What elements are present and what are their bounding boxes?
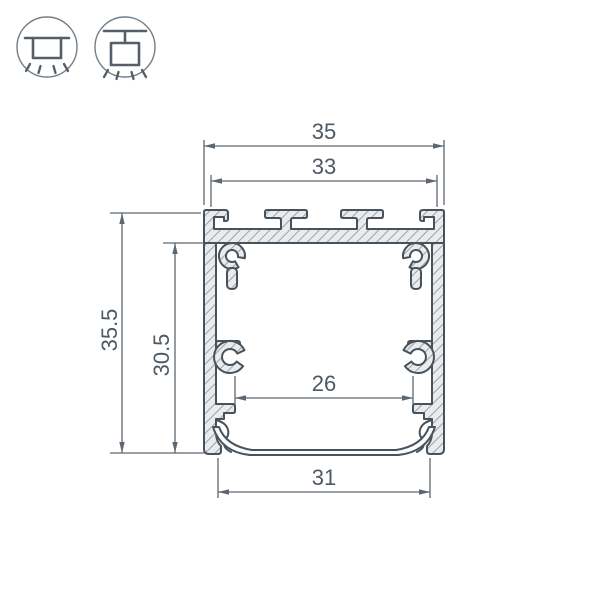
arrow-right — [426, 178, 437, 183]
arrow-right — [419, 489, 430, 494]
icon-circle — [95, 17, 155, 77]
dim-label-inner-width: 26 — [312, 371, 336, 396]
dimension-bottom-width: 31 — [218, 458, 430, 498]
dim-label-outer-width: 35 — [312, 119, 336, 144]
middle-screw-boss-right — [404, 341, 434, 373]
profile-drawing-svg: 35 33 35.5 30.5 — [0, 0, 600, 600]
light-ray — [54, 66, 56, 73]
dim-label-bottom-width: 31 — [312, 465, 336, 490]
luminaire-box — [111, 43, 139, 65]
light-ray — [39, 66, 41, 73]
arrow-right — [402, 395, 413, 400]
light-ray — [132, 72, 134, 79]
arrow-left — [211, 178, 222, 183]
dim-label-outer-height: 35.5 — [97, 309, 122, 352]
diffuser-cover — [213, 427, 435, 455]
upper-boss-finger-right — [411, 268, 421, 289]
upper-screw-boss-right — [403, 243, 429, 269]
dimension-inner-height: 30.5 — [149, 243, 204, 453]
arrow-right — [433, 143, 444, 148]
arrow-bottom — [172, 442, 177, 453]
profile-cross-section — [204, 210, 444, 455]
dimensions: 35 33 35.5 30.5 — [97, 119, 444, 498]
upper-screw-boss-left — [219, 243, 245, 269]
technical-drawing-page: 35 33 35.5 30.5 — [0, 0, 600, 600]
arrow-bottom — [119, 442, 124, 453]
profile-top-plate — [204, 210, 444, 243]
icon-circle — [17, 17, 77, 77]
dimension-top-inner-width: 33 — [211, 154, 437, 207]
dim-label-inner-height: 30.5 — [149, 334, 174, 377]
arrow-left — [204, 143, 215, 148]
arrow-left — [218, 489, 229, 494]
mount-icons — [17, 17, 155, 79]
light-ray — [117, 72, 119, 79]
arrow-top — [172, 243, 177, 254]
dimension-inner-width: 26 — [235, 371, 413, 404]
upper-boss-finger-left — [227, 268, 237, 289]
dim-label-top-inner-width: 33 — [312, 154, 336, 179]
middle-screw-boss-left — [214, 341, 244, 373]
dimension-outer-height: 35.5 — [97, 213, 204, 453]
arrow-left — [235, 395, 246, 400]
luminaire-box — [33, 38, 61, 58]
surface-mount-icon — [17, 17, 77, 77]
pendant-mount-icon — [95, 17, 155, 79]
arrow-top — [119, 213, 124, 224]
